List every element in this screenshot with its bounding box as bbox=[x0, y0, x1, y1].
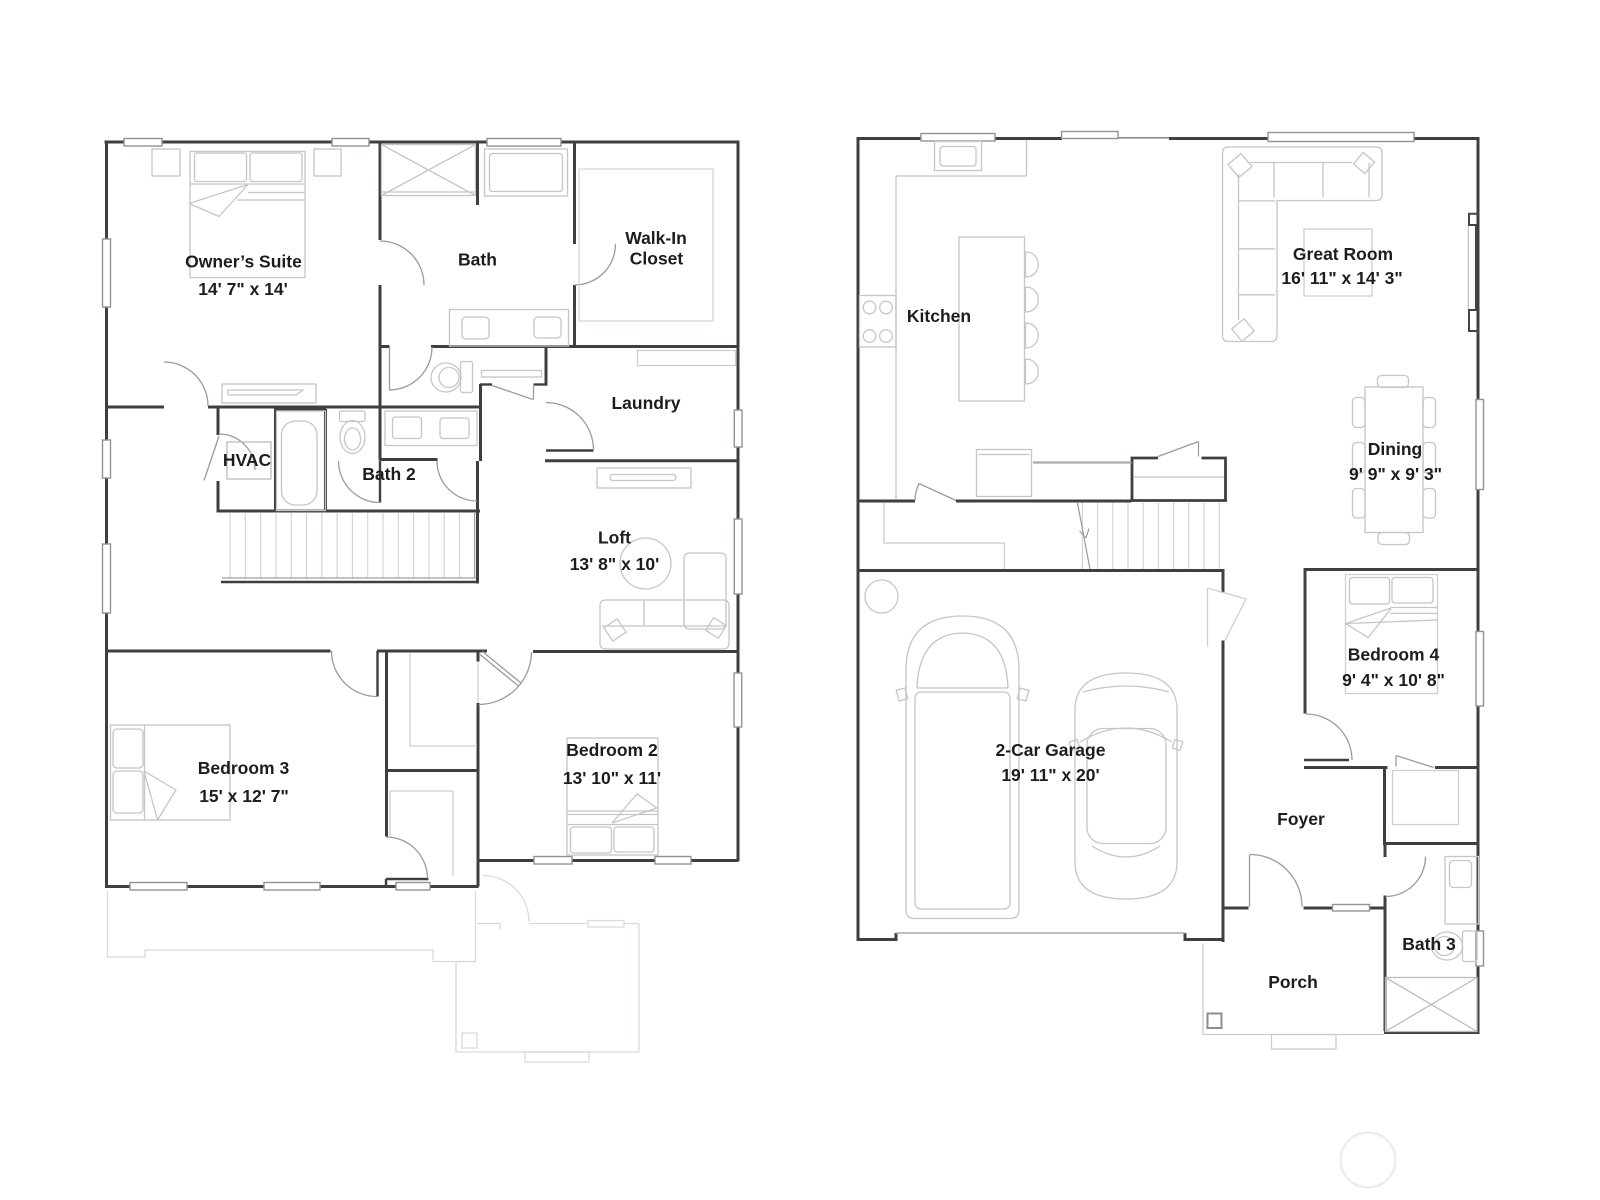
svg-text:15' x 12' 7": 15' x 12' 7" bbox=[199, 786, 289, 806]
svg-text:Owner’s Suite: Owner’s Suite bbox=[185, 252, 302, 272]
svg-text:Great Room: Great Room bbox=[1293, 244, 1393, 264]
svg-text:Bath 2: Bath 2 bbox=[362, 464, 416, 484]
svg-text:Bath: Bath bbox=[458, 250, 497, 270]
svg-text:13' 10" x 11': 13' 10" x 11' bbox=[563, 768, 661, 788]
svg-text:19' 11" x 20': 19' 11" x 20' bbox=[1001, 765, 1099, 785]
svg-text:9' 4" x 10' 8": 9' 4" x 10' 8" bbox=[1342, 670, 1445, 690]
svg-text:Porch: Porch bbox=[1268, 972, 1318, 992]
svg-text:Loft: Loft bbox=[598, 528, 631, 548]
svg-text:13' 8" x 10': 13' 8" x 10' bbox=[570, 554, 660, 574]
svg-text:2-Car Garage: 2-Car Garage bbox=[996, 740, 1106, 760]
svg-text:Kitchen: Kitchen bbox=[907, 306, 971, 326]
svg-text:16' 11" x 14' 3": 16' 11" x 14' 3" bbox=[1281, 268, 1402, 288]
svg-text:Closet: Closet bbox=[630, 249, 684, 269]
svg-text:Bedroom 4: Bedroom 4 bbox=[1348, 645, 1440, 665]
svg-text:Dining: Dining bbox=[1368, 439, 1422, 459]
svg-text:HVAC: HVAC bbox=[223, 450, 272, 470]
svg-text:Bedroom 2: Bedroom 2 bbox=[566, 740, 658, 760]
svg-text:Bedroom 3: Bedroom 3 bbox=[198, 758, 290, 778]
svg-text:Bath 3: Bath 3 bbox=[1402, 934, 1456, 954]
svg-text:Walk-In: Walk-In bbox=[625, 228, 687, 248]
svg-text:9' 9" x 9' 3": 9' 9" x 9' 3" bbox=[1349, 464, 1442, 484]
svg-text:Laundry: Laundry bbox=[611, 393, 680, 413]
svg-text:14' 7" x 14': 14' 7" x 14' bbox=[198, 279, 288, 299]
svg-text:Foyer: Foyer bbox=[1277, 809, 1325, 829]
